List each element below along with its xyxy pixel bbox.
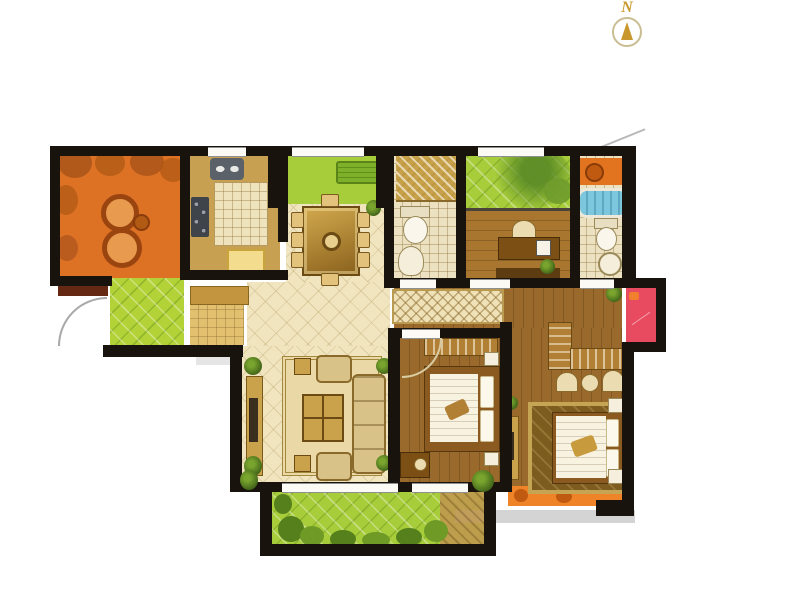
rattan-chair: [102, 228, 142, 268]
wall-guestbath-east: [456, 146, 466, 280]
wall-entry-south: [103, 345, 243, 357]
wall-south-balcony-west: [260, 490, 272, 552]
wall-kitchen-west: [180, 146, 190, 276]
door-opening: [470, 279, 510, 289]
shoe-cabinet: [190, 286, 249, 305]
north-arrow-compass: N: [605, 0, 649, 56]
computer-monitor: [536, 240, 551, 256]
entry-door-swing-icon: [58, 297, 107, 346]
corner-tree-icon: [240, 470, 258, 490]
entry-mat: [190, 305, 244, 345]
building-shadow: [196, 357, 232, 365]
door-opening: [400, 279, 436, 289]
kitchen-counter: [214, 182, 268, 246]
armchair: [316, 355, 352, 383]
counter-sink-icon: [585, 163, 604, 182]
table-centerpiece-icon: [322, 232, 341, 251]
wardrobe-shelf-unit: [548, 322, 572, 370]
balcony-plant-icon: [514, 489, 528, 502]
corner-tree-icon: [472, 470, 494, 492]
dining-chair: [291, 252, 304, 268]
dining-chair: [357, 252, 370, 268]
side-table: [294, 358, 311, 375]
dining-chair: [321, 194, 339, 207]
side-table: [294, 455, 311, 472]
toilet-bowl: [403, 216, 428, 244]
dining-chair: [357, 232, 370, 248]
balcony-door-opening: [412, 483, 468, 493]
entry-foyer-floor: [110, 278, 184, 346]
wall-dining-east: [384, 146, 394, 288]
floor-plan: N: [0, 0, 800, 611]
window: [208, 147, 246, 157]
wall-south-balcony-east: [484, 490, 496, 552]
pillow: [480, 410, 494, 442]
side-table: [133, 214, 150, 231]
round-basin: [598, 252, 622, 276]
hallway-mat: [392, 289, 504, 324]
wall-study-east: [570, 146, 580, 280]
bush-icon: [424, 520, 448, 542]
nightstand: [484, 352, 499, 366]
pillow: [606, 419, 619, 447]
wall-nw-balcony-south: [50, 276, 112, 286]
toilet-bowl: [596, 227, 617, 251]
window: [292, 147, 364, 157]
window: [478, 147, 544, 157]
door-opening: [580, 279, 614, 289]
planter-sill: [58, 286, 108, 296]
dining-chair: [291, 232, 304, 248]
nightstand: [608, 398, 623, 413]
wall-living-west: [230, 345, 242, 492]
wall-bedroom2-west: [388, 328, 400, 482]
dining-chair: [291, 212, 304, 228]
dining-chair: [321, 273, 339, 286]
armchair: [316, 452, 352, 481]
television: [249, 398, 258, 442]
north-arrow-icon: [621, 22, 633, 40]
potted-plant-icon: [540, 259, 555, 274]
wall-masterbath-east: [622, 146, 636, 280]
door-opening: [402, 329, 440, 339]
balcony-deck: [440, 492, 486, 546]
wall-platform-east: [656, 280, 666, 348]
compass-circle-icon: [612, 17, 642, 47]
wall-kitchen-east: [278, 146, 288, 242]
wall-bedroom2-east: [500, 322, 512, 482]
potted-plant-icon: [244, 357, 262, 375]
wall-garden-west: [268, 146, 278, 208]
pillow: [480, 376, 494, 408]
vanity-stool: [414, 458, 427, 471]
shower-mosaic-area: [396, 156, 456, 202]
stove-cooktop: [191, 197, 209, 237]
pouf-seat: [581, 374, 599, 392]
wall-kitchen-south: [180, 270, 288, 280]
wall-south-balcony-south: [260, 544, 496, 556]
nightstand: [608, 469, 623, 484]
coffee-table: [302, 394, 344, 442]
nightstand: [484, 452, 499, 466]
wall-corner-se: [596, 500, 634, 516]
bush-icon: [274, 494, 292, 514]
north-label: N: [605, 0, 649, 16]
bush-icon: [300, 526, 324, 546]
dining-passage-floor: [247, 282, 390, 346]
balcony-sliding-door: [282, 483, 398, 493]
bush-icon: [544, 178, 572, 204]
garden-bench: [336, 161, 380, 184]
pouf-seat: [556, 372, 578, 392]
wardrobe: [570, 348, 624, 370]
wall-left: [50, 146, 60, 286]
pedestal-sink: [398, 246, 424, 276]
pouf-seat: [602, 370, 624, 392]
kitchen-sink: [210, 158, 244, 180]
wall-master-east: [622, 342, 634, 508]
platform-unit-icon: [629, 292, 639, 300]
